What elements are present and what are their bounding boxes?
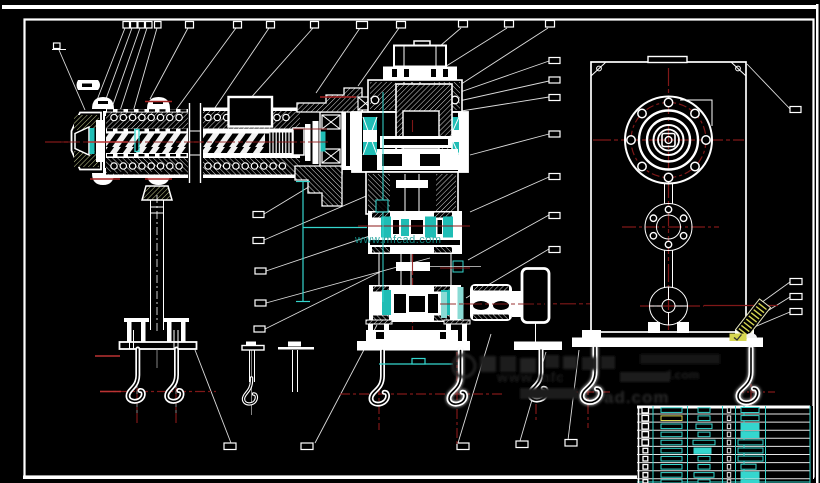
svg-text:d.com: d.com bbox=[664, 368, 699, 382]
svg-text:ad.com: ad.com bbox=[604, 388, 670, 407]
svg-text:www.mfcad.com: www.mfcad.com bbox=[354, 234, 442, 246]
svg-text:www.mfc: www.mfc bbox=[496, 369, 565, 385]
